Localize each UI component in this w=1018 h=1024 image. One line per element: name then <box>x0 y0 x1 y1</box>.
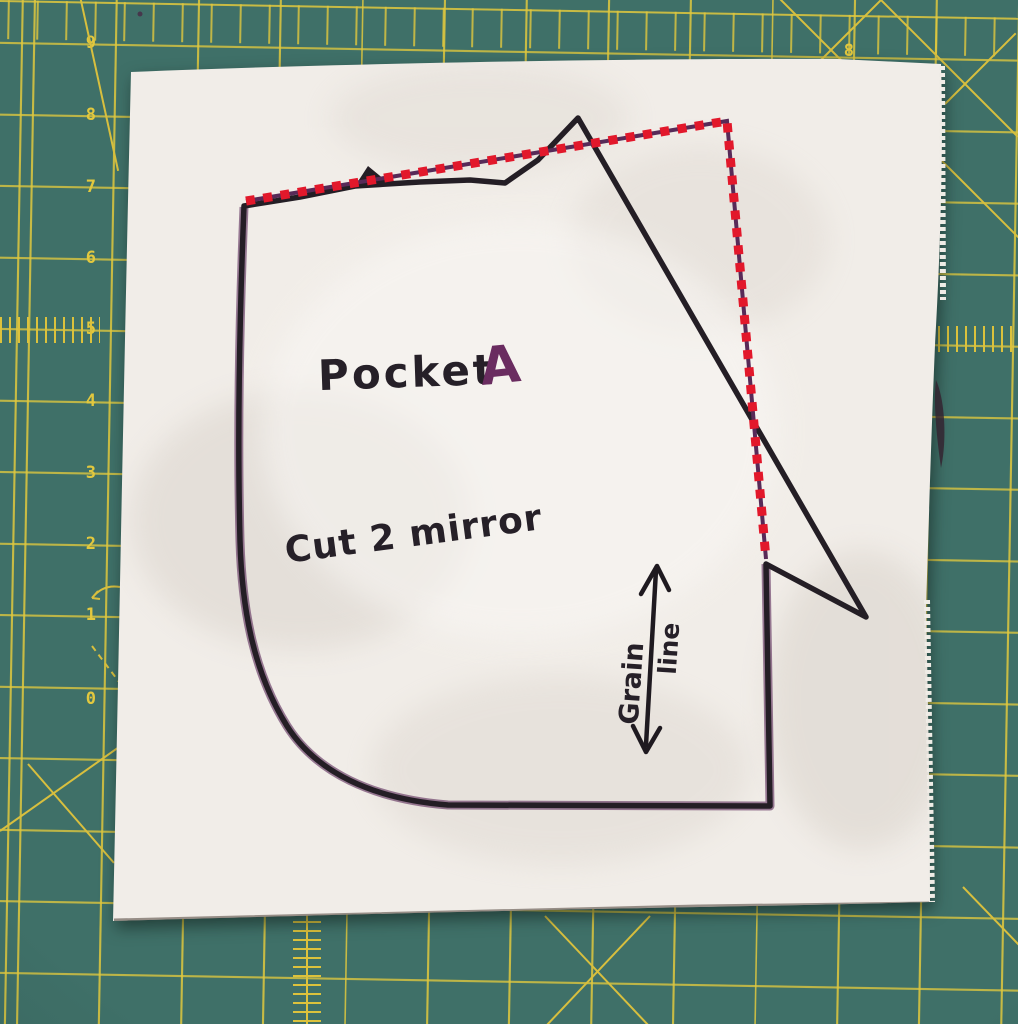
torn-edge-serration <box>942 66 943 300</box>
grainline-word-line: line <box>652 616 685 682</box>
marker-smudge <box>935 380 944 468</box>
photo-pattern-on-cutting-mat: 9 8 7 6 5 4 3 2 1 0 8 <box>0 0 1018 1024</box>
mat-speck <box>138 12 143 17</box>
pattern-piece-letter-label: A <box>477 334 523 398</box>
pattern-piece-name-label: Pocket <box>317 345 497 400</box>
